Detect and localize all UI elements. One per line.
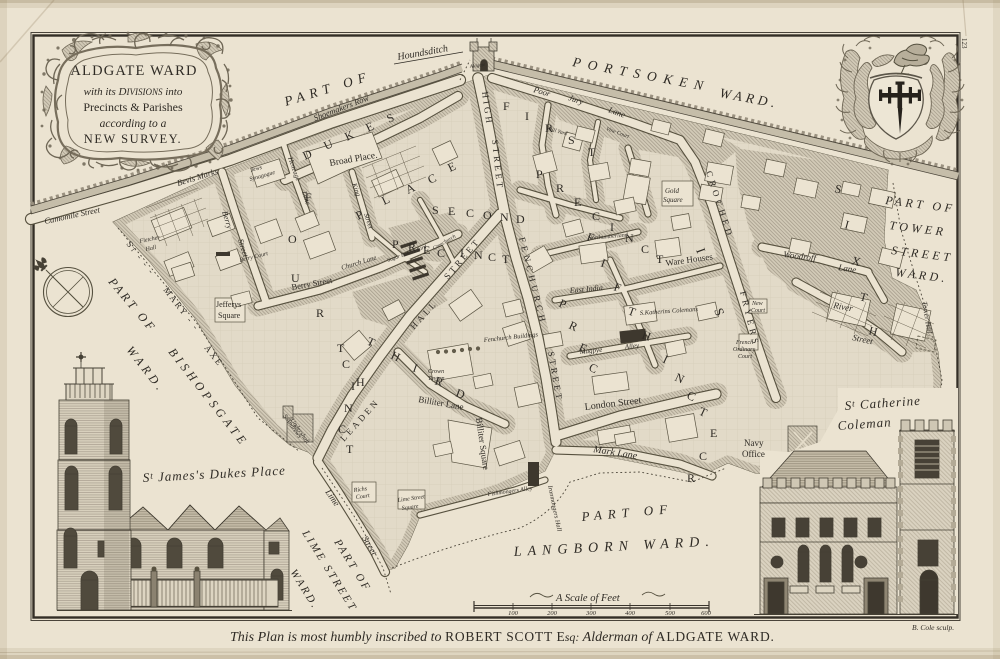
svg-text:according to a: according to a: [100, 118, 167, 130]
svg-text:C: C: [592, 209, 600, 223]
svg-text:R: R: [545, 121, 553, 135]
svg-text:H: H: [356, 375, 365, 389]
svg-text:U: U: [291, 271, 300, 285]
svg-text:E: E: [448, 204, 455, 218]
svg-text:C: C: [338, 422, 346, 436]
svg-text:R: R: [316, 306, 324, 320]
svg-text:Office: Office: [742, 449, 765, 459]
svg-text:ALDGATE WARD: ALDGATE WARD: [70, 63, 197, 79]
svg-text:A Scale of Feet: A Scale of Feet: [555, 593, 621, 604]
svg-text:C: C: [342, 357, 350, 371]
svg-text:600: 600: [701, 610, 712, 617]
svg-text:400: 400: [625, 610, 636, 617]
svg-text:C: C: [488, 250, 496, 264]
svg-text:Court: Court: [738, 354, 752, 360]
svg-text:R: R: [556, 181, 564, 195]
svg-text:with its DIVISIONS into: with its DIVISIONS into: [84, 86, 183, 98]
svg-text:S: S: [432, 203, 439, 217]
svg-text:P: P: [392, 237, 399, 251]
svg-text:N: N: [500, 210, 509, 224]
svg-text:T: T: [588, 145, 596, 159]
svg-text:P: P: [536, 167, 543, 181]
svg-text:D: D: [516, 212, 525, 226]
svg-text:F: F: [305, 190, 312, 204]
svg-text:C: C: [699, 449, 707, 463]
svg-text:300: 300: [585, 610, 597, 617]
svg-text:NEW SURVEY.: NEW SURVEY.: [84, 132, 182, 146]
svg-text:Square: Square: [218, 311, 241, 320]
svg-text:E: E: [710, 426, 717, 440]
svg-text:Jefferys: Jefferys: [216, 300, 241, 309]
svg-text:Square: Square: [663, 196, 683, 204]
svg-text:Precincts & Parishes: Precincts & Parishes: [83, 100, 183, 114]
svg-text:This Plan is most humbly inscr: This Plan is most humbly inscribed to RO…: [230, 629, 775, 645]
svg-text:O: O: [483, 208, 492, 222]
svg-text:C: C: [437, 246, 445, 260]
svg-text:C: C: [466, 206, 474, 220]
svg-text:E: E: [423, 243, 430, 257]
svg-text:I: I: [351, 379, 355, 393]
svg-text:I: I: [610, 220, 614, 234]
svg-text:123: 123: [960, 38, 968, 49]
svg-text:S: S: [568, 133, 575, 147]
svg-text:100: 100: [508, 610, 519, 617]
svg-text:T: T: [656, 252, 664, 266]
svg-text:C: C: [641, 242, 649, 256]
svg-text:Navy: Navy: [744, 438, 764, 448]
svg-text:O: O: [288, 232, 297, 246]
svg-text:I: I: [525, 109, 529, 123]
svg-text:B. Cole sculp.: B. Cole sculp.: [912, 623, 954, 632]
svg-text:N: N: [474, 248, 483, 262]
svg-text:R: R: [408, 240, 416, 254]
svg-text:F: F: [503, 99, 510, 113]
svg-text:I: I: [460, 246, 464, 260]
svg-text:Alley: Alley: [623, 341, 640, 351]
svg-text:T: T: [346, 442, 354, 456]
svg-text:N: N: [625, 231, 634, 245]
svg-text:N: N: [344, 401, 353, 415]
svg-text:T: T: [337, 341, 345, 355]
svg-text:R: R: [687, 471, 695, 485]
svg-text:Gold: Gold: [665, 187, 680, 195]
svg-text:500: 500: [665, 610, 676, 617]
svg-text:T: T: [502, 252, 510, 266]
svg-text:E: E: [574, 195, 581, 209]
svg-text:200: 200: [547, 610, 558, 617]
